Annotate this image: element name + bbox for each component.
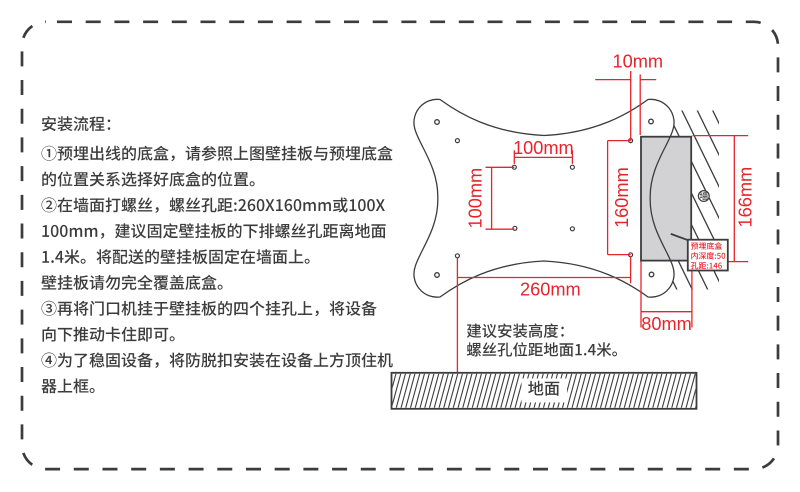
svg-text:166mm: 166mm (736, 167, 756, 228)
svg-text:160mm: 160mm (612, 167, 632, 228)
svg-text:10mm: 10mm (613, 51, 664, 71)
svg-text:80mm: 80mm (641, 314, 692, 334)
svg-text:100mm: 100mm (513, 138, 574, 158)
svg-text:100mm: 100mm (465, 168, 485, 229)
svg-text:260mm: 260mm (520, 279, 581, 299)
